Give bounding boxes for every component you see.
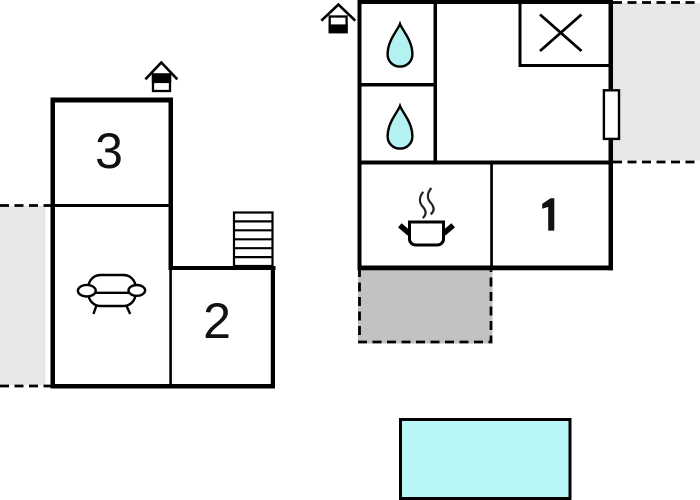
svg-text:2: 2 bbox=[203, 293, 231, 349]
svg-text:3: 3 bbox=[95, 123, 123, 179]
